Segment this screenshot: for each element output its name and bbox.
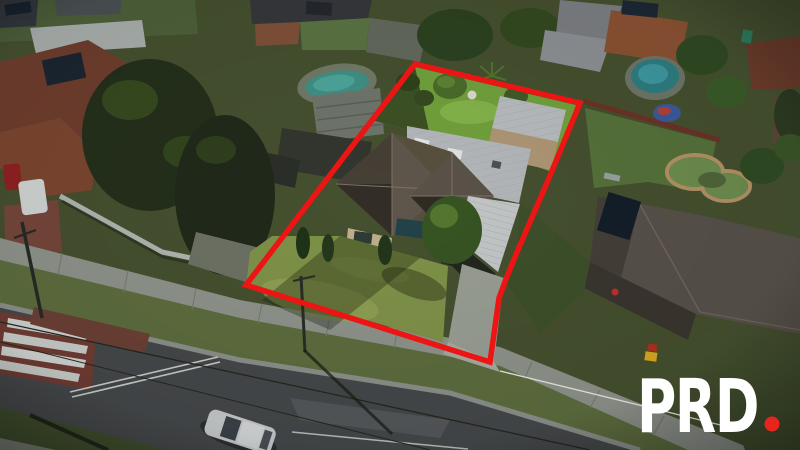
aerial-photo-canvas: PRD bbox=[0, 0, 800, 450]
prd-logo-text: PRD bbox=[637, 364, 758, 450]
aerial-photo: PRD bbox=[0, 0, 800, 450]
prd-logo-dot bbox=[765, 417, 780, 432]
